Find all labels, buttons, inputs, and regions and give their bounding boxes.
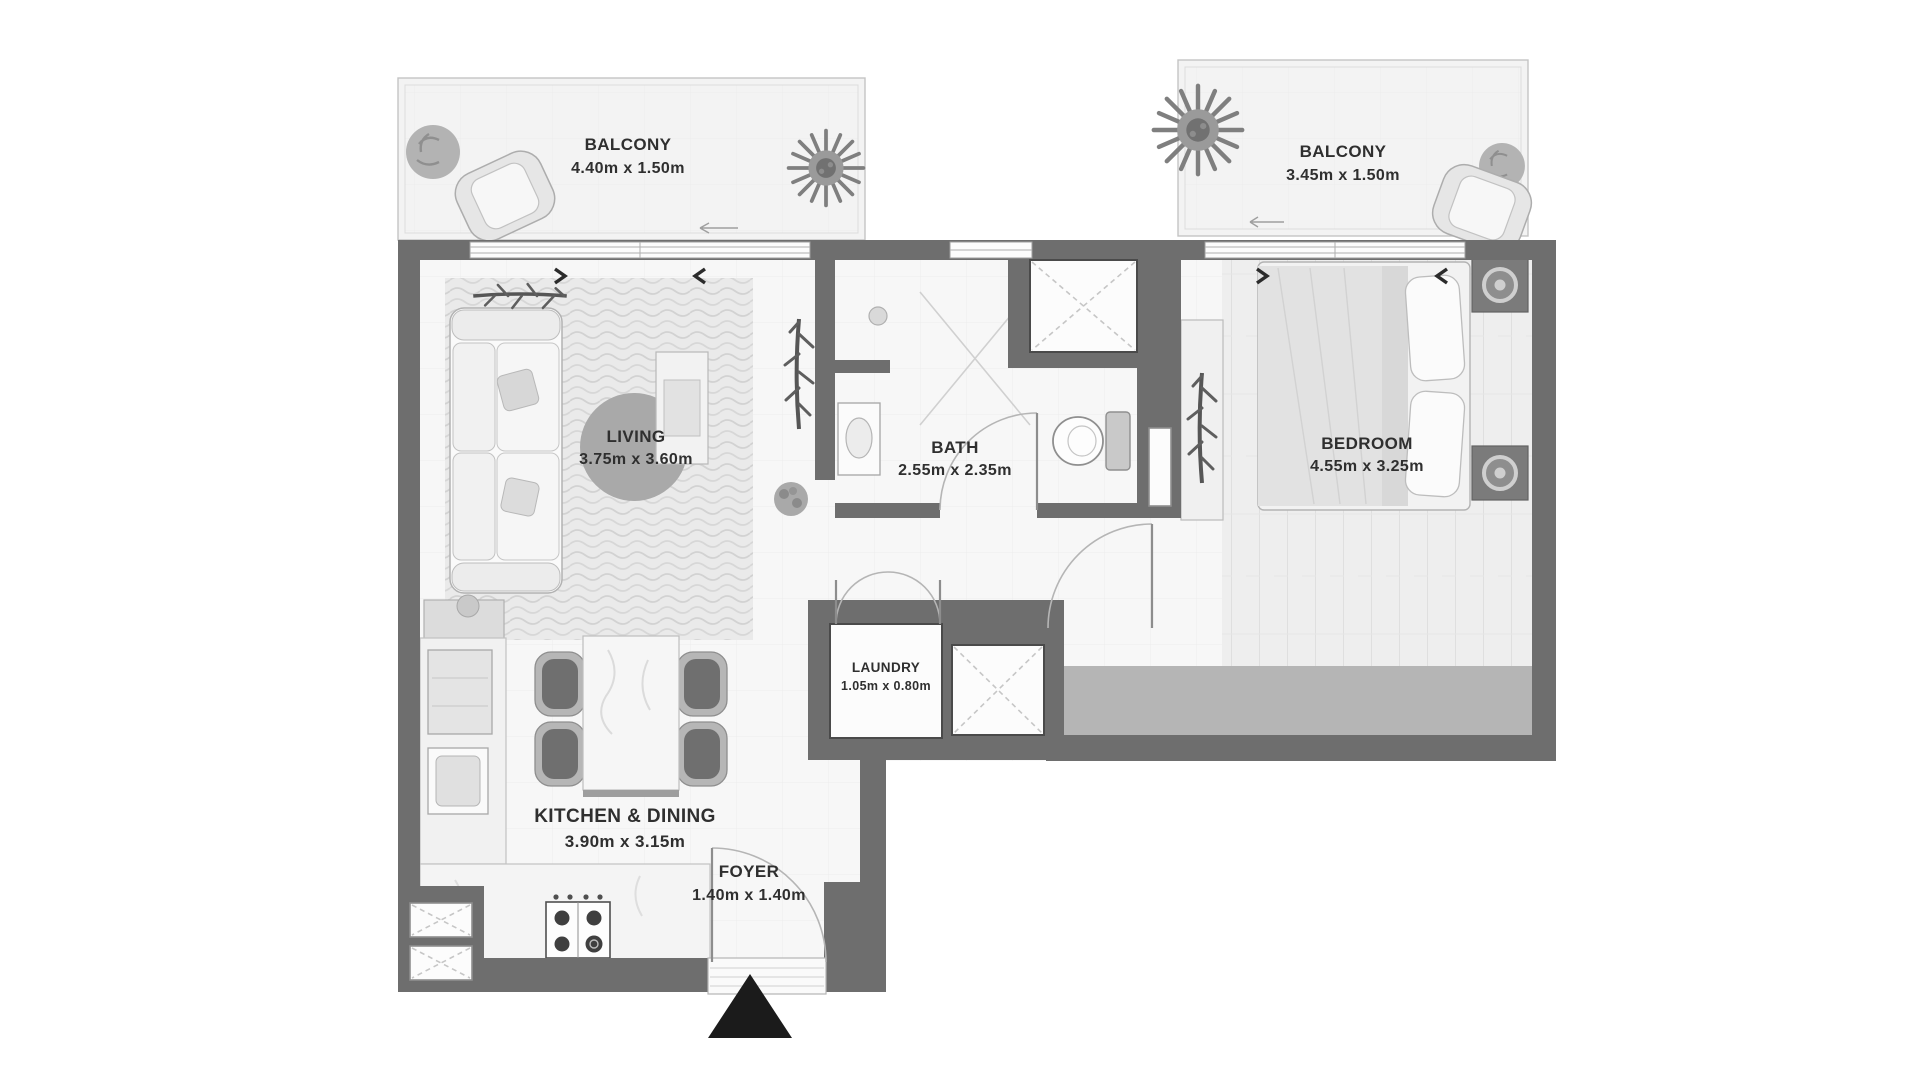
pillow bbox=[1404, 274, 1465, 382]
balcony-right-dims: 3.45m x 1.50m bbox=[1286, 167, 1400, 184]
floor-plan-page: BALCONY 4.40m x 1.50m BALCONY 3.45m x 1.… bbox=[0, 0, 1920, 1080]
kitchen-dining-dims: 3.90m x 3.15m bbox=[565, 832, 686, 851]
hall-plant bbox=[774, 482, 808, 516]
foyer-dims: 1.40m x 1.40m bbox=[692, 887, 806, 904]
bedroom-dims: 4.55m x 3.25m bbox=[1310, 458, 1424, 475]
bath-vanity bbox=[838, 403, 880, 475]
balcony-right-label: BALCONY bbox=[1300, 142, 1387, 161]
stove bbox=[546, 894, 610, 958]
bedroom-window bbox=[1205, 242, 1465, 258]
side-table bbox=[457, 595, 479, 617]
kitchen-dining-label: KITCHEN & DINING bbox=[534, 806, 716, 827]
foyer-label: FOYER bbox=[719, 862, 780, 881]
sofa bbox=[450, 308, 562, 593]
balcony-left-label: BALCONY bbox=[585, 135, 672, 154]
bath-window bbox=[950, 242, 1032, 258]
fridge bbox=[428, 650, 492, 734]
living-dims: 3.75m x 3.60m bbox=[579, 451, 693, 468]
nightstand bbox=[1472, 446, 1528, 500]
pillow bbox=[1404, 390, 1465, 498]
toilet bbox=[1053, 412, 1130, 470]
entry-threshold bbox=[708, 958, 826, 994]
living-window bbox=[470, 242, 810, 258]
shaft-bottom bbox=[952, 645, 1044, 735]
bath-label: BATH bbox=[931, 438, 979, 457]
nightstand bbox=[1472, 258, 1528, 312]
dining-table bbox=[583, 636, 679, 790]
laundry-dims: 1.05m x 0.80m bbox=[841, 679, 931, 693]
living-label: LIVING bbox=[606, 427, 665, 446]
wall-niche bbox=[1149, 428, 1171, 506]
dining-set bbox=[535, 636, 727, 797]
laundry-label: LAUNDRY bbox=[852, 660, 920, 675]
drain bbox=[869, 307, 887, 325]
bedroom-label: BEDROOM bbox=[1321, 434, 1413, 453]
bedroom-band bbox=[1046, 666, 1532, 736]
floor-plan-drawing: BALCONY 4.40m x 1.50m BALCONY 3.45m x 1.… bbox=[0, 0, 1920, 1080]
bath-dims: 2.55m x 2.35m bbox=[898, 462, 1012, 479]
balcony-left-dims: 4.40m x 1.50m bbox=[571, 160, 685, 177]
